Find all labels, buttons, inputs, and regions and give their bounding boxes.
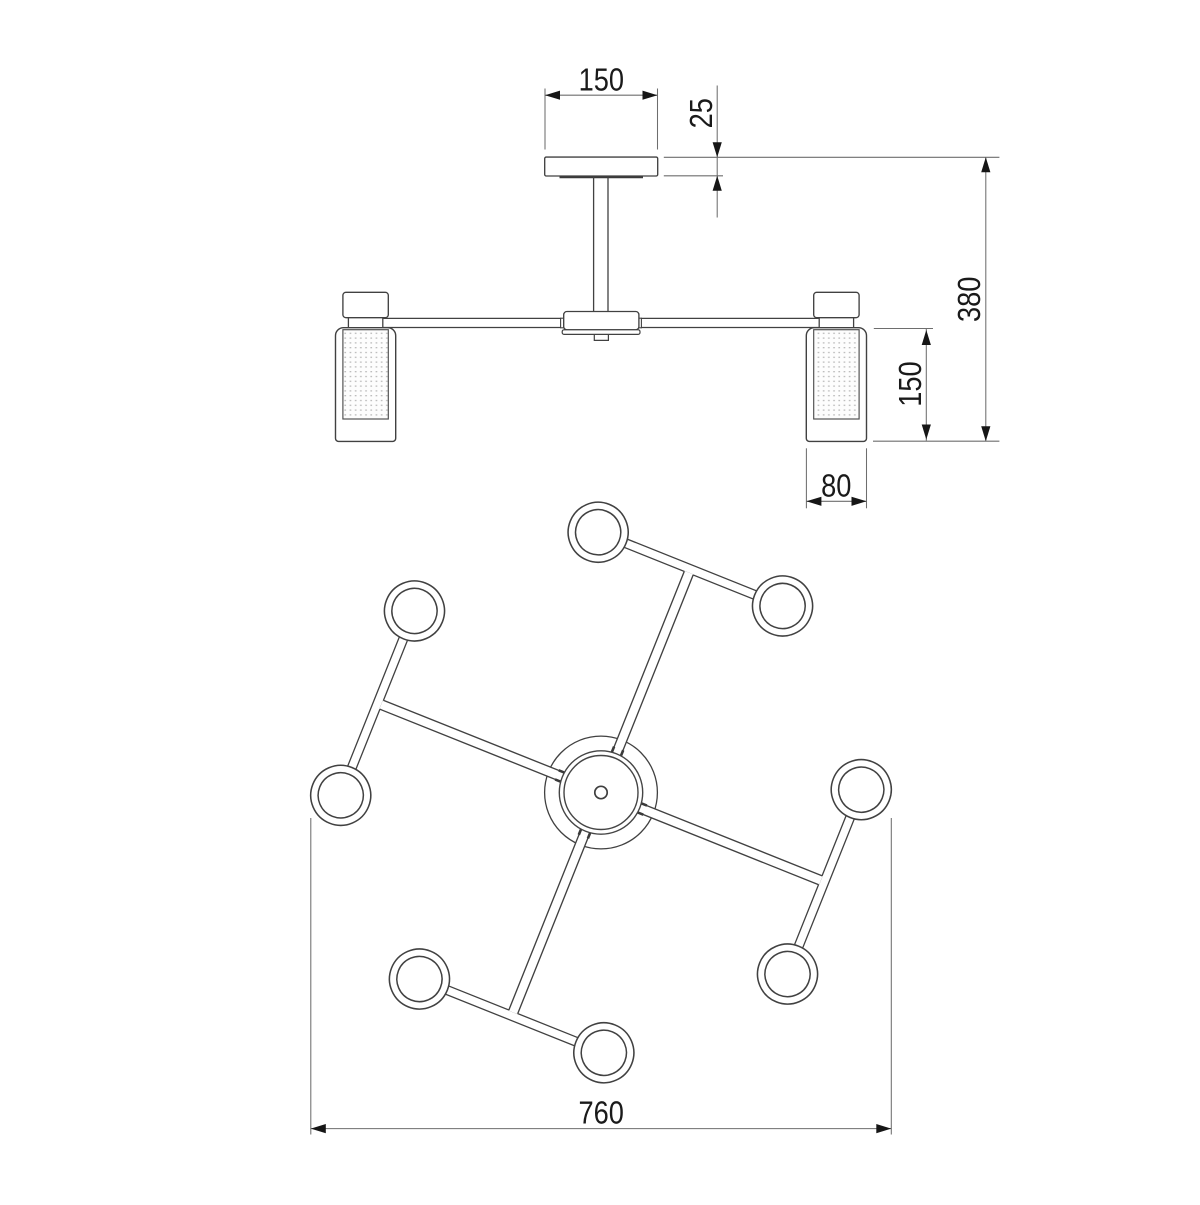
svg-text:380: 380 (951, 277, 987, 322)
svg-text:80: 80 (821, 468, 851, 504)
svg-text:150: 150 (579, 62, 624, 98)
svg-text:25: 25 (683, 98, 719, 128)
svg-text:150: 150 (892, 361, 928, 406)
svg-text:760: 760 (579, 1094, 624, 1130)
